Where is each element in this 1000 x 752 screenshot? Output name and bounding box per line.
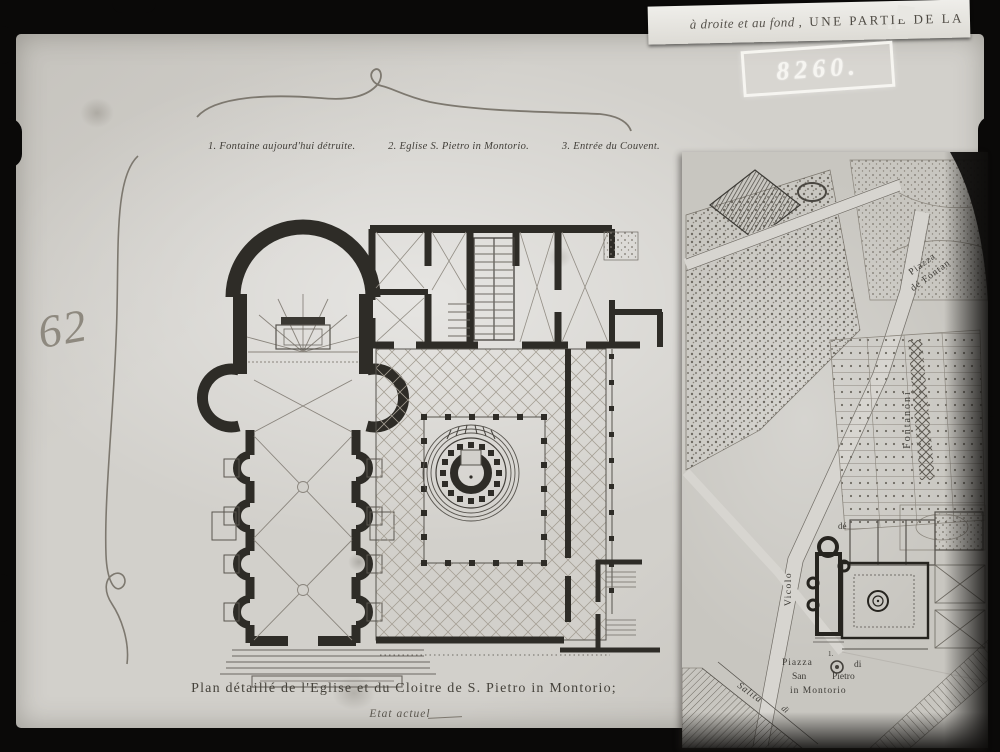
- tempietto: [423, 425, 519, 521]
- plan-title: Plan détaillé de l'Eglise et du Cloitre …: [178, 681, 630, 697]
- label-san: San: [792, 672, 806, 682]
- label-piazza: Piazza: [782, 658, 813, 668]
- pencil-overbrace: [197, 69, 631, 131]
- photo-plate: { "document": { "archive_number": "8260.…: [0, 0, 1000, 752]
- staircase: [448, 238, 514, 340]
- room-floor-diagonals: [376, 232, 608, 342]
- city-map-drawing: [682, 152, 988, 748]
- label-fountain-marker: 1.: [828, 650, 833, 658]
- cloister: [376, 349, 660, 655]
- pencil-side-brace: [106, 156, 138, 664]
- label-fontanoni: Fontanoni: [902, 390, 913, 449]
- label-di: di: [854, 660, 861, 670]
- garden-plot: [604, 232, 638, 260]
- label-pietro: Pietro: [832, 672, 855, 682]
- plan-subtitle: Etat actuel: [300, 708, 500, 720]
- city-map-inset: Piazza dé Fontan Fontanoni Vicolo dé 1. …: [682, 152, 988, 748]
- label-vicolo: Vicolo: [784, 572, 794, 606]
- mini-church-plan: [808, 538, 928, 649]
- church-floor-lines: [247, 294, 359, 640]
- label-in-montorio: in Montorio: [790, 686, 847, 696]
- label-vicolo-de: dé: [838, 521, 847, 531]
- photo-bottom-shadow: [682, 712, 988, 748]
